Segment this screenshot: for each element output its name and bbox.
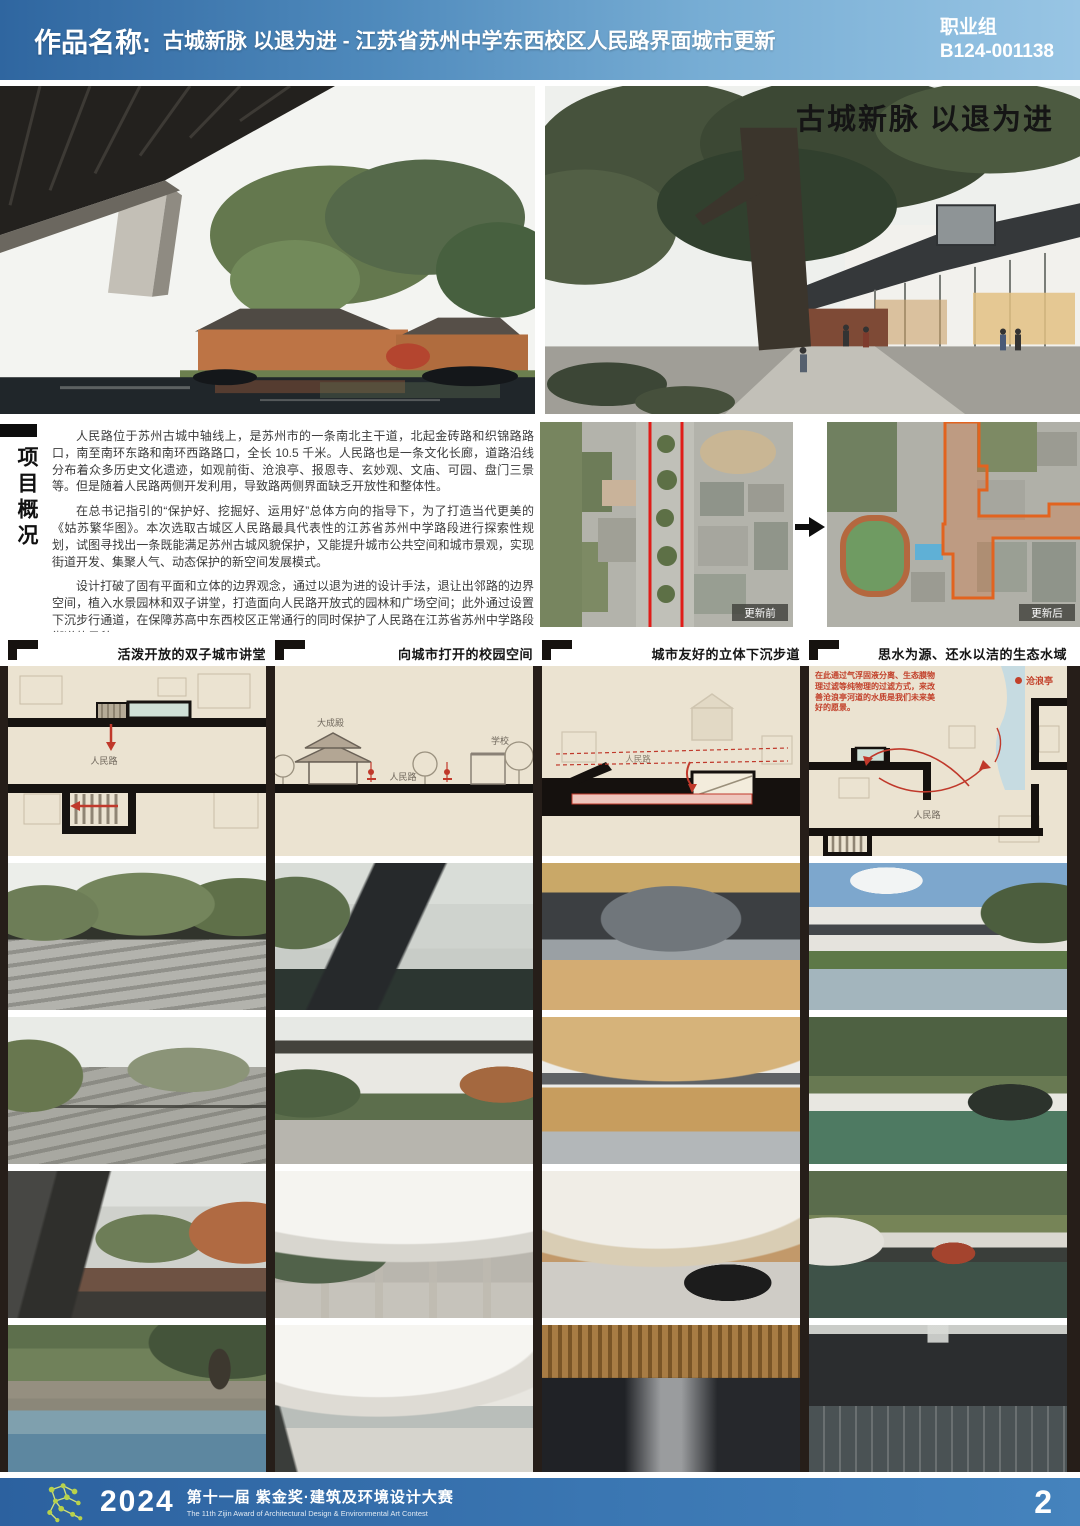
map-before-label: 更新前: [744, 607, 776, 620]
garden-bridge-illustration: [0, 86, 535, 414]
eco-filtration-note: 在此通过气浮固液分离、生态膜物理过滤等纯物理的过滤方式，来改善沧浪亭河道的水质是…: [815, 671, 939, 714]
render-waterside-building: [809, 863, 1067, 1010]
column-sunken-walkway: 城市友好的立体下沉步道: [542, 640, 800, 1472]
render-pavilion-walkway: [8, 1171, 266, 1318]
column-divider: [0, 666, 8, 1472]
entry-number: B124-001138: [940, 40, 1054, 64]
render-white-courtyard: [275, 1017, 533, 1164]
render-terraced-seating: [8, 1017, 266, 1164]
column-content: 人民路: [542, 666, 800, 1472]
hall-label: 大成殿: [317, 717, 344, 728]
column-title: 城市友好的立体下沉步道: [572, 640, 800, 663]
section-diagram-underpass: 人民路: [542, 666, 800, 856]
road-label: 人民路: [913, 809, 940, 820]
project-title: 古城新脉 以退为进: [796, 96, 1054, 138]
overview-paragraph: 在总书记指引的“保护好、挖掘好、运用好”总体方向的指导下，为了打造当代更美的《姑…: [52, 503, 534, 570]
column-header: 向城市打开的校园空间: [275, 640, 533, 666]
render-green-pond: [809, 1017, 1067, 1164]
overview-paragraphs: 人民路位于苏州古城中轴线上，是苏州市的一条南北主干道，北起金砖路和织锦路路口，南…: [52, 428, 534, 632]
map-before-illustration: 更新前: [540, 422, 793, 627]
column-title: 向城市打开的校园空间: [305, 640, 533, 663]
contest-subtitle: The 11th Zijin Award of Architectural De…: [187, 1509, 454, 1518]
corner-bracket-icon: [809, 640, 839, 660]
plan-diagram-1: 人民路: [8, 666, 266, 856]
hero-row: 古城新脉 以退为进: [0, 86, 1080, 414]
render-amphitheater-steps: [8, 863, 266, 1010]
road-label: 人民路: [625, 754, 651, 764]
work-title: 古城新脉 以退为进 - 江苏省苏州中学东西校区人民路界面城市更新: [163, 25, 940, 55]
render-dark-canal: [809, 1325, 1067, 1472]
corner-bracket-icon: [542, 640, 572, 660]
render-interior-piano-room: [542, 1171, 800, 1318]
section-diagram-3: 人民路: [542, 666, 800, 856]
zijin-award-logo: [42, 1481, 88, 1523]
competition-board: 作品名称: 古城新脉 以退为进 - 江苏省苏州中学东西校区人民路界面城市更新 职…: [0, 0, 1080, 1526]
overview-paragraph: 设计打破了固有平面和立体的边界观念，通过以退为进的设计手法，退让出邻路的边界空间…: [52, 578, 534, 632]
render-interior-wood-steps: [542, 1017, 800, 1164]
column-open-campus: 向城市打开的校园空间 大成殿 学校: [275, 640, 533, 1472]
column-content: 人民路: [8, 666, 266, 1472]
column-header: 城市友好的立体下沉步道: [542, 640, 800, 666]
work-name-label: 作品名称:: [34, 21, 151, 60]
overview-section: 项目概况 人民路位于苏州古城中轴线上，是苏州市的一条南北主干道，北起金砖路和织锦…: [0, 422, 1080, 632]
overview-paragraph: 人民路位于苏州古城中轴线上，是苏州市的一条南北主干道，北起金砖路和织锦路路口，南…: [52, 428, 534, 495]
column-divider: [1067, 666, 1080, 1472]
column-header: 思水为源、还水以洁的生态水域: [809, 640, 1067, 666]
render-canopy-colonnade: [275, 1171, 533, 1318]
section-diagram-campus: 大成殿 学校 人民路: [275, 666, 533, 856]
render-garden-bridge-view: [0, 86, 535, 414]
column-title: 思水为源、还水以洁的生态水域: [839, 640, 1067, 663]
column-city-lecture-hall: 活泼开放的双子城市讲堂: [8, 640, 266, 1472]
map-before: 更新前: [540, 422, 793, 627]
road-label: 人民路: [90, 755, 117, 766]
pavilion-name: 沧浪亭: [1026, 674, 1053, 687]
column-eco-water: 思水为源、还水以洁的生态水域: [809, 640, 1067, 1472]
theme-columns: 活泼开放的双子城市讲堂: [0, 640, 1080, 1472]
corner-bracket-icon: [275, 640, 305, 660]
contest-year: 2024: [100, 1485, 175, 1519]
map-after-label: 更新后: [1031, 607, 1063, 620]
contest-title-block: 第十一届 紫金奖·建筑及环境设计大赛 The 11th Zijin Award …: [187, 1486, 454, 1518]
column-divider: [800, 666, 809, 1472]
render-curved-gallery: [275, 1325, 533, 1472]
school-label: 学校: [491, 735, 509, 746]
contest-title: 第十一届 紫金奖·建筑及环境设计大赛: [187, 1486, 454, 1507]
header-bar: 作品名称: 古城新脉 以退为进 - 江苏省苏州中学东西校区人民路界面城市更新 职…: [0, 0, 1080, 80]
plan-diagram-eco-water: 人民路: [809, 666, 1067, 856]
footer-bar: 2024 第十一届 紫金奖·建筑及环境设计大赛 The 11th Zijin A…: [0, 1478, 1080, 1526]
overview-text-block: 项目概况 人民路位于苏州古城中轴线上，是苏州市的一条南北主干道，北起金砖路和织锦…: [0, 422, 540, 632]
road-label: 人民路: [389, 771, 416, 782]
render-campus-building-water: [275, 863, 533, 1010]
canglang-pavilion-label: 沧浪亭: [1015, 674, 1053, 687]
column-divider: [533, 666, 542, 1472]
corner-bracket-icon: [8, 640, 38, 660]
render-pool-plaza: [8, 1325, 266, 1472]
column-content: 人民路: [809, 666, 1067, 1472]
render-dark-corridor: [542, 1325, 800, 1472]
render-canal-pavilion: [809, 1171, 1067, 1318]
render-street-view: 古城新脉 以退为进: [545, 86, 1080, 414]
page-number: 2: [1034, 1484, 1062, 1521]
entry-group: 职业组: [940, 16, 1054, 40]
render-interior-hall-audience: [542, 863, 800, 1010]
column-divider: [266, 666, 275, 1472]
entry-info: 职业组 B124-001138: [940, 16, 1054, 64]
map-after-illustration: 更新后: [827, 422, 1080, 627]
aerial-maps: 更新前: [540, 422, 1080, 632]
section-title: 项目概况: [11, 446, 41, 550]
map-point-icon: [1015, 677, 1022, 684]
column-content: 大成殿 学校 人民路: [275, 666, 533, 1472]
arrow-right-icon: [795, 516, 825, 538]
section-diagram-2: 大成殿 学校 人民路: [275, 666, 533, 856]
section-tick-bar: [0, 424, 37, 437]
plan-diagram-lecture-hall: 人民路: [8, 666, 266, 856]
map-after: 更新后: [827, 422, 1080, 627]
before-after-arrow: [793, 516, 827, 538]
column-header: 活泼开放的双子城市讲堂: [8, 640, 266, 666]
column-title: 活泼开放的双子城市讲堂: [38, 640, 266, 663]
